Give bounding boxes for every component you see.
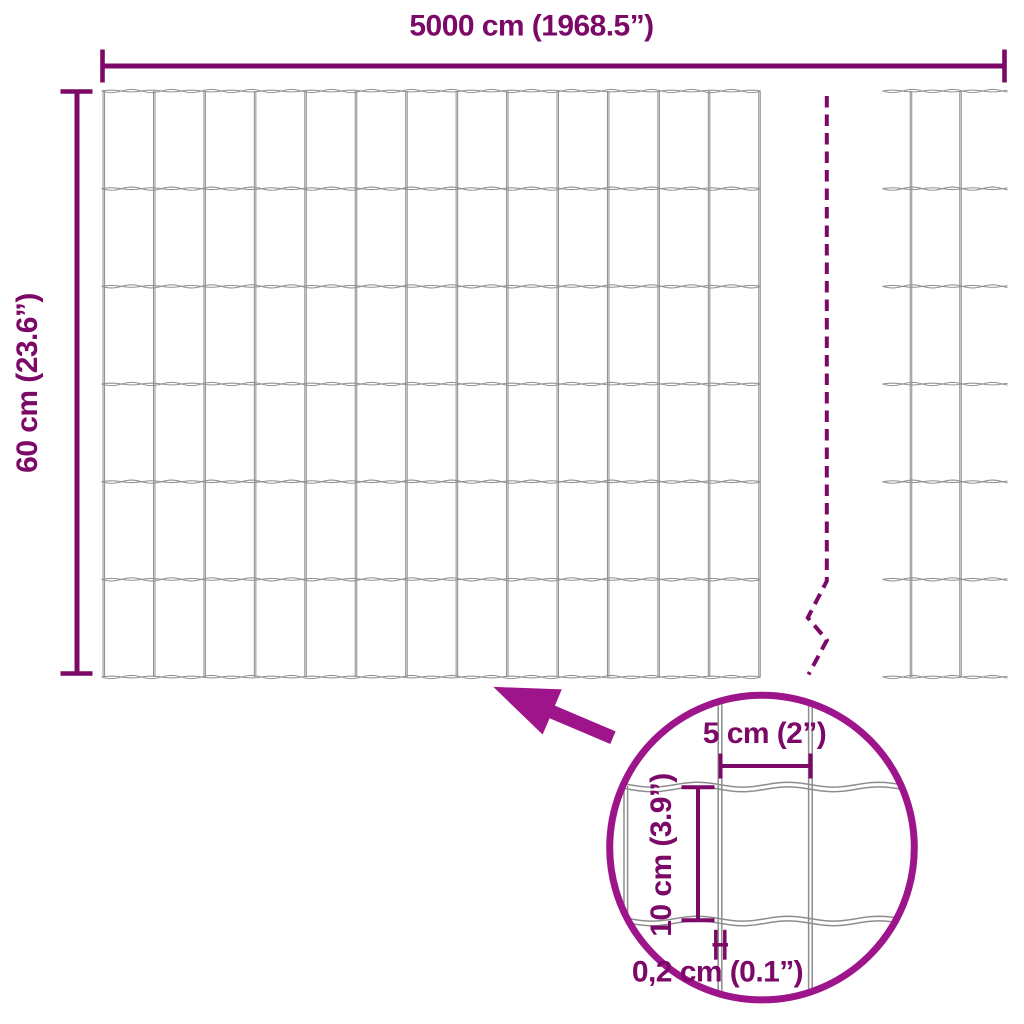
svg-text:5000 cm (1968.5”): 5000 cm (1968.5”) — [409, 10, 653, 43]
svg-text:5 cm (2”): 5 cm (2”) — [703, 717, 826, 750]
svg-text:10 cm (3.9”): 10 cm (3.9”) — [645, 773, 678, 936]
svg-text:0,2 cm (0.1”): 0,2 cm (0.1”) — [632, 955, 803, 988]
svg-text:60 cm (23.6”): 60 cm (23.6”) — [11, 293, 44, 473]
